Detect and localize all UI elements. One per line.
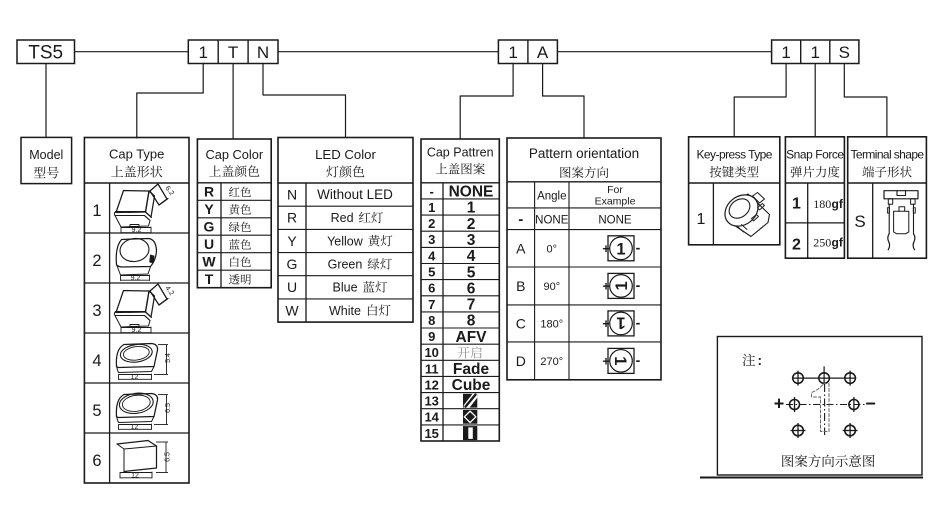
svg-text:9.2: 9.2: [132, 327, 142, 334]
svg-text:10: 10: [424, 345, 438, 360]
svg-text:+: +: [602, 279, 609, 293]
svg-text:Terminal shape: Terminal shape: [851, 148, 925, 162]
svg-text:T: T: [228, 43, 238, 62]
svg-text:8: 8: [467, 313, 476, 330]
svg-text:+: +: [602, 317, 609, 331]
svg-text:R: R: [287, 210, 297, 226]
svg-text:B: B: [516, 278, 525, 294]
svg-text:W: W: [202, 254, 216, 270]
svg-text:Cube: Cube: [452, 377, 491, 394]
svg-text:-: -: [636, 239, 641, 255]
svg-text:1: 1: [616, 313, 625, 331]
svg-text:90°: 90°: [543, 281, 560, 293]
svg-text:1: 1: [810, 43, 819, 62]
svg-text:2: 2: [428, 216, 435, 231]
svg-text:-: -: [636, 314, 641, 330]
svg-text:1: 1: [613, 281, 631, 290]
svg-text:R: R: [204, 184, 214, 200]
svg-text:1: 1: [611, 356, 629, 365]
svg-text:180: 180: [813, 197, 831, 211]
svg-text:NONE: NONE: [598, 215, 632, 227]
svg-text:Pattern orientation: Pattern orientation: [529, 146, 639, 161]
svg-text:S: S: [839, 43, 850, 62]
svg-text:gf: gf: [832, 197, 844, 211]
svg-text:U: U: [204, 236, 214, 252]
svg-text:7: 7: [467, 297, 476, 314]
svg-text:15: 15: [424, 426, 438, 441]
svg-text:9: 9: [428, 329, 435, 344]
svg-text:N: N: [287, 187, 297, 203]
svg-text:2: 2: [467, 216, 476, 233]
svg-text:1: 1: [92, 202, 101, 220]
svg-text:180°: 180°: [540, 318, 563, 330]
svg-text:6: 6: [428, 281, 435, 296]
svg-text:-: -: [518, 211, 523, 228]
svg-text:W: W: [285, 302, 299, 318]
svg-text:U: U: [287, 279, 297, 295]
svg-text::: :: [758, 353, 763, 368]
svg-text:1: 1: [467, 200, 476, 217]
svg-text:4: 4: [467, 248, 476, 265]
svg-text:Red: Red: [331, 211, 354, 225]
svg-text:TS5: TS5: [28, 43, 63, 64]
svg-text:12: 12: [131, 424, 139, 431]
svg-text:Without LED: Without LED: [317, 187, 393, 202]
svg-text:NONE: NONE: [535, 215, 569, 227]
svg-text:1: 1: [616, 240, 625, 258]
svg-text:1: 1: [781, 43, 790, 62]
svg-text:1: 1: [508, 43, 517, 62]
svg-text:Cap Type: Cap Type: [109, 147, 164, 162]
svg-text:For: For: [607, 184, 623, 196]
svg-text:Y: Y: [204, 201, 214, 217]
svg-text:-: -: [430, 184, 434, 199]
svg-text:2: 2: [92, 252, 101, 270]
svg-text:5: 5: [92, 402, 101, 420]
svg-text:+: +: [602, 242, 609, 256]
svg-text:6: 6: [467, 280, 476, 297]
svg-text:9.2: 9.2: [131, 275, 141, 282]
svg-text:250: 250: [813, 236, 831, 250]
svg-text:Example: Example: [595, 196, 636, 208]
svg-text:3: 3: [467, 232, 476, 249]
svg-text:14: 14: [424, 410, 439, 425]
svg-text:11: 11: [425, 361, 439, 376]
svg-text:Model: Model: [29, 148, 63, 162]
svg-text:LED Color: LED Color: [315, 147, 376, 162]
svg-text:NONE: NONE: [449, 183, 494, 200]
svg-text:S: S: [854, 212, 865, 231]
svg-text:1: 1: [792, 196, 801, 213]
svg-text:Cap Pattren: Cap Pattren: [427, 146, 494, 160]
svg-text:Y: Y: [287, 233, 297, 249]
svg-text:7: 7: [428, 297, 435, 312]
svg-text:A: A: [537, 43, 549, 62]
svg-text:5.4: 5.4: [165, 353, 172, 363]
svg-text:6.5: 6.5: [165, 403, 172, 413]
svg-text:+: +: [774, 394, 785, 414]
svg-text:Key-press Type: Key-press Type: [696, 148, 772, 162]
svg-text:White: White: [329, 304, 361, 318]
svg-text:Yellow: Yellow: [327, 234, 364, 248]
svg-text:Green: Green: [328, 258, 363, 272]
svg-text:9.2: 9.2: [132, 227, 142, 234]
svg-text:T: T: [205, 271, 214, 287]
svg-text:gf: gf: [832, 236, 844, 250]
svg-text:−: −: [865, 394, 876, 414]
svg-text:5: 5: [467, 264, 476, 281]
svg-text:2: 2: [792, 237, 801, 254]
svg-text:-: -: [636, 277, 641, 293]
svg-text:G: G: [287, 256, 298, 272]
svg-text:Cap Color: Cap Color: [205, 147, 263, 162]
svg-text:12: 12: [424, 377, 438, 392]
svg-text:Angle: Angle: [537, 191, 566, 203]
svg-text:1: 1: [697, 211, 706, 228]
svg-text:4: 4: [92, 352, 101, 370]
svg-text:3: 3: [92, 302, 101, 320]
svg-text:3: 3: [428, 232, 435, 247]
svg-text:8: 8: [428, 313, 435, 328]
svg-text:N: N: [257, 43, 269, 62]
svg-text:AFV: AFV: [456, 329, 488, 346]
svg-text:4: 4: [428, 248, 436, 263]
svg-text:Fade: Fade: [453, 361, 490, 378]
svg-text:D: D: [516, 353, 526, 369]
svg-text:5: 5: [428, 265, 435, 280]
svg-text:6: 6: [92, 452, 101, 470]
svg-text:270°: 270°: [540, 356, 563, 368]
svg-text:A: A: [516, 240, 526, 256]
svg-text:12: 12: [131, 374, 139, 381]
svg-text:6.5: 6.5: [165, 452, 172, 462]
svg-text:0°: 0°: [547, 243, 558, 255]
svg-text:G: G: [204, 219, 215, 235]
svg-text:-: -: [636, 352, 641, 368]
svg-text:Blue: Blue: [333, 281, 358, 295]
svg-text:12: 12: [131, 473, 139, 480]
svg-text:1: 1: [428, 200, 435, 215]
svg-text:C: C: [516, 315, 526, 331]
svg-text:Snap Force: Snap Force: [786, 148, 844, 162]
svg-text:1: 1: [198, 43, 207, 62]
svg-text:+: +: [602, 354, 609, 368]
svg-text:13: 13: [424, 394, 438, 409]
